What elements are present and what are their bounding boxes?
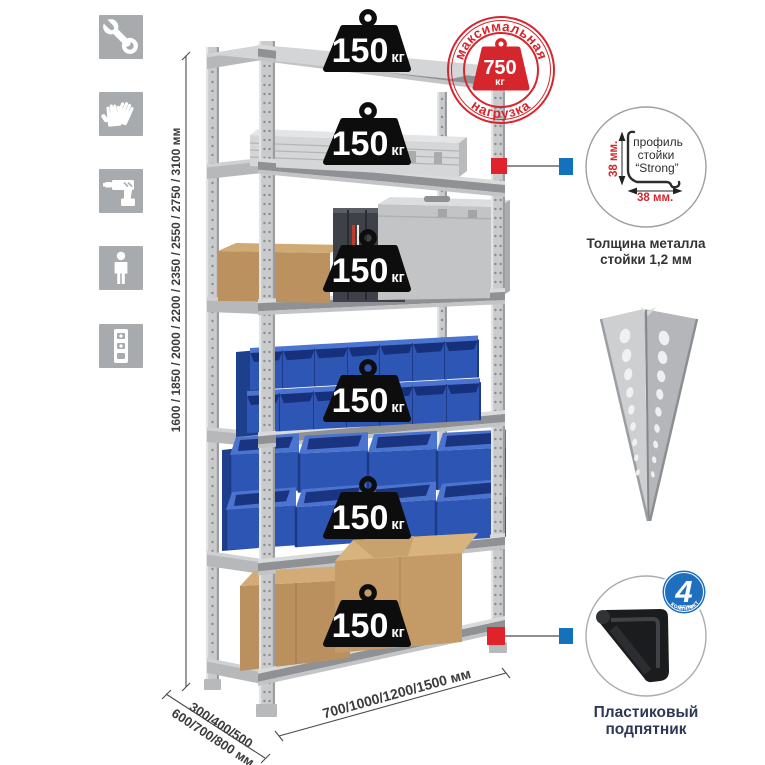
svg-text:стойки: стойки bbox=[638, 148, 675, 162]
svg-text:Пластиковый: Пластиковый bbox=[594, 704, 699, 721]
svg-text:кг: кг bbox=[495, 76, 505, 88]
svg-text:150: 150 bbox=[332, 32, 389, 70]
svg-text:кг: кг bbox=[391, 400, 404, 416]
svg-text:Толщина металла: Толщина металла bbox=[586, 236, 706, 251]
svg-text:кг: кг bbox=[391, 143, 404, 159]
svg-text:профиль: профиль bbox=[633, 135, 683, 149]
svg-text:штуки: штуки bbox=[678, 604, 693, 610]
svg-text:“Strong”: “Strong” bbox=[635, 161, 678, 175]
svg-text:кг: кг bbox=[391, 517, 404, 533]
svg-text:150: 150 bbox=[332, 382, 389, 420]
svg-text:150: 150 bbox=[332, 252, 389, 290]
svg-text:стойки 1,2 мм: стойки 1,2 мм bbox=[600, 252, 692, 267]
svg-text:кг: кг bbox=[391, 270, 404, 286]
svg-text:кг: кг bbox=[391, 625, 404, 641]
svg-text:1600 / 1850 / 2000 / 2200 / 23: 1600 / 1850 / 2000 / 2200 / 2350 / 2550 … bbox=[169, 128, 183, 433]
svg-text:150: 150 bbox=[332, 125, 389, 163]
svg-text:кг: кг bbox=[391, 50, 404, 66]
svg-text:150: 150 bbox=[332, 607, 389, 645]
svg-text:150: 150 bbox=[332, 499, 389, 537]
svg-text:подпятник: подпятник bbox=[605, 721, 686, 738]
svg-text:38 мм.: 38 мм. bbox=[637, 192, 673, 204]
svg-text:38 мм.: 38 мм. bbox=[608, 141, 620, 177]
